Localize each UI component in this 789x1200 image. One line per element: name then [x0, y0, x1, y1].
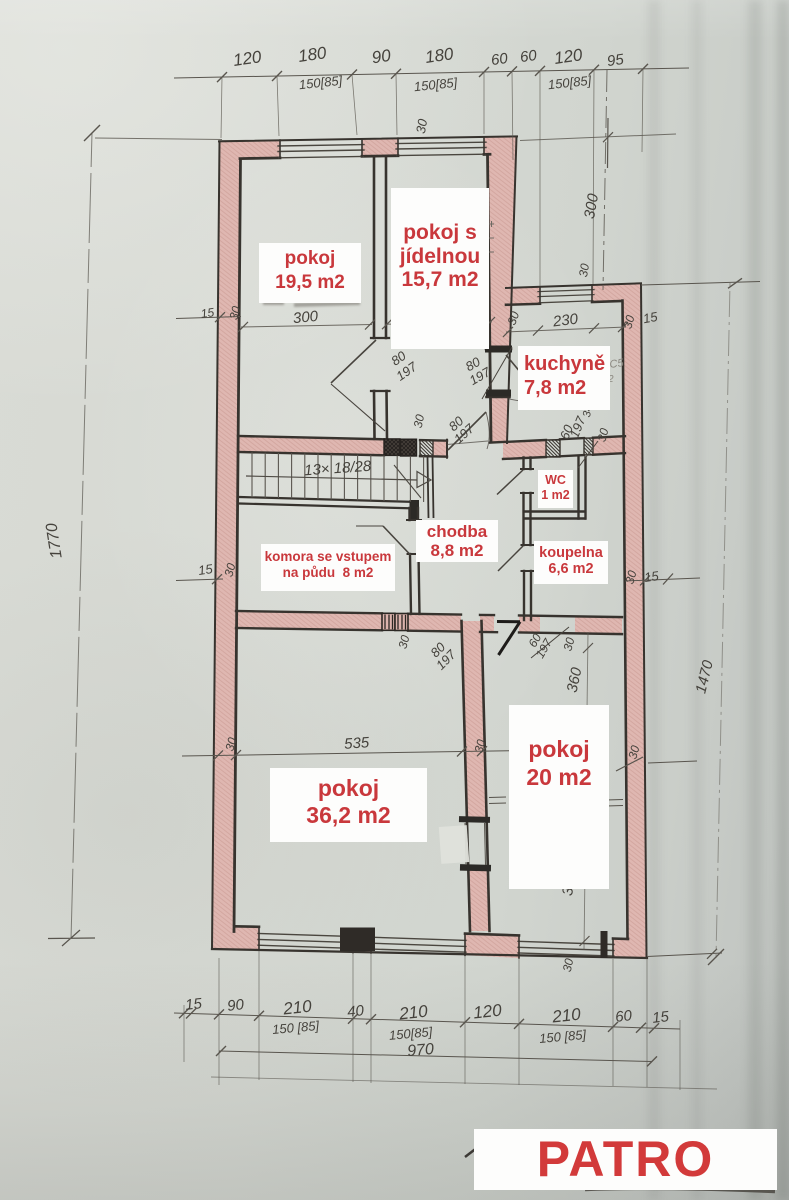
- svg-text:230: 230: [551, 310, 580, 330]
- svg-text:30: 30: [625, 744, 642, 761]
- svg-text:30: 30: [560, 957, 577, 973]
- svg-text:30: 30: [227, 304, 244, 321]
- svg-text:15: 15: [197, 561, 214, 578]
- svg-text:30: 30: [621, 313, 638, 330]
- svg-text:15: 15: [200, 305, 215, 321]
- svg-text:60: 60: [525, 631, 544, 650]
- svg-text:30: 30: [622, 569, 639, 586]
- svg-text:970: 970: [407, 1041, 435, 1060]
- svg-text:15: 15: [184, 995, 203, 1014]
- svg-text:210: 210: [281, 997, 313, 1019]
- svg-text:40: 40: [346, 1002, 365, 1021]
- svg-text:150[85]: 150[85]: [413, 75, 458, 94]
- svg-text:80: 80: [388, 348, 409, 369]
- svg-text:30: 30: [576, 262, 592, 278]
- svg-text:C5: C5: [609, 357, 625, 371]
- svg-text:30: 30: [471, 738, 488, 755]
- svg-text:150[85]: 150[85]: [388, 1024, 433, 1043]
- svg-text:197: 197: [433, 646, 459, 672]
- svg-text:360: 360: [564, 665, 586, 694]
- svg-text:30: 30: [505, 309, 523, 327]
- svg-text:95: 95: [606, 51, 626, 70]
- svg-text:30: 30: [560, 636, 577, 653]
- svg-text:197: 197: [566, 414, 588, 440]
- svg-text:90: 90: [226, 996, 245, 1015]
- svg-text:197: 197: [467, 364, 494, 388]
- svg-text:60: 60: [519, 47, 539, 66]
- svg-text:120: 120: [553, 45, 584, 68]
- svg-text:90: 90: [371, 46, 393, 68]
- svg-text:210: 210: [550, 1005, 582, 1027]
- svg-text:150[85]: 150[85]: [547, 73, 592, 92]
- svg-text:30: 30: [595, 426, 612, 443]
- svg-text:180: 180: [297, 43, 328, 66]
- svg-text:535: 535: [344, 734, 371, 753]
- svg-text:150 [85]: 150 [85]: [539, 1027, 588, 1046]
- svg-text:30: 30: [411, 413, 428, 429]
- svg-text:210: 210: [397, 1002, 429, 1024]
- svg-text:300: 300: [581, 192, 602, 220]
- svg-text:80: 80: [427, 639, 448, 660]
- svg-text:120: 120: [472, 1001, 503, 1023]
- svg-text:120: 120: [232, 47, 263, 70]
- svg-text:180: 180: [424, 44, 455, 67]
- svg-text:30: 30: [222, 561, 239, 578]
- svg-text:60: 60: [614, 1007, 633, 1026]
- svg-text:1770: 1770: [43, 522, 65, 560]
- svg-text:150[85]: 150[85]: [298, 73, 343, 92]
- svg-text:30: 30: [222, 736, 239, 753]
- svg-text:13× 18/28: 13× 18/28: [304, 458, 373, 480]
- svg-text:150 [85]: 150 [85]: [272, 1018, 321, 1037]
- svg-text:300: 300: [292, 308, 319, 328]
- svg-text:197: 197: [451, 420, 478, 446]
- svg-text:80: 80: [463, 354, 484, 375]
- svg-text:197: 197: [533, 635, 556, 660]
- svg-text:60: 60: [490, 50, 510, 69]
- svg-text:197: 197: [393, 359, 420, 384]
- svg-text:30: 30: [413, 117, 430, 135]
- svg-text:30: 30: [396, 633, 413, 650]
- svg-text:60: 60: [557, 422, 577, 442]
- svg-text:80: 80: [446, 413, 467, 434]
